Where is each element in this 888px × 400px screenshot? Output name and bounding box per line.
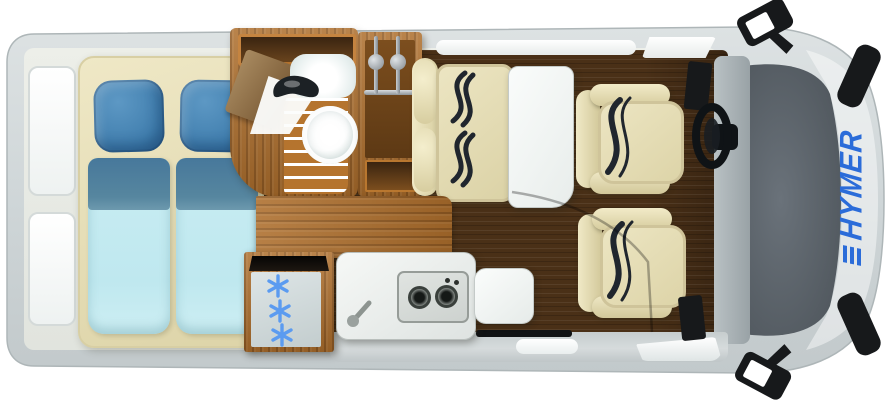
hob-knob bbox=[454, 280, 459, 285]
seatbelt-icon bbox=[590, 92, 660, 188]
cab-door-window-top bbox=[642, 37, 716, 58]
clothes-hanger-icon bbox=[372, 36, 380, 94]
hob-knob bbox=[445, 278, 450, 283]
side-window-strip bbox=[436, 40, 636, 55]
duvet bbox=[88, 158, 170, 334]
door-sill bbox=[516, 339, 578, 354]
faucet-icon bbox=[268, 70, 332, 110]
passenger-swivel-seat bbox=[578, 208, 682, 318]
toilet bbox=[302, 106, 358, 164]
rear-door-window-bottom bbox=[28, 212, 76, 326]
snowflake-icon bbox=[269, 276, 287, 296]
dinette-table bbox=[508, 66, 574, 208]
kitchen-faucet-icon bbox=[345, 297, 375, 327]
clothes-hanger-icon bbox=[394, 36, 402, 94]
seatbelts-icon bbox=[439, 67, 505, 193]
b-pillar-top bbox=[684, 61, 713, 111]
hymer-logo-text: HYMER bbox=[834, 128, 870, 241]
door-track bbox=[476, 330, 572, 337]
hymer-logo-mark-icon bbox=[843, 245, 861, 266]
hymer-logo: HYMER bbox=[834, 102, 870, 292]
bench-armrest bbox=[412, 58, 438, 196]
travel-bench-seat bbox=[436, 64, 514, 202]
fridge-opening bbox=[249, 256, 329, 271]
snowflake-icon bbox=[271, 301, 289, 321]
fridge-lid-panel bbox=[251, 272, 321, 347]
pillow bbox=[93, 79, 165, 153]
seatbelt-icon bbox=[592, 216, 662, 312]
b-pillar-bottom bbox=[678, 295, 706, 341]
kitchen-unit-body bbox=[256, 196, 452, 258]
burner-icon bbox=[408, 286, 431, 309]
wardrobe-lower-shelf bbox=[365, 160, 419, 192]
kitchen-counter bbox=[336, 252, 476, 340]
driver-swivel-seat bbox=[576, 84, 680, 194]
refrigerator bbox=[244, 252, 334, 352]
burner-icon bbox=[435, 285, 458, 308]
floorplan-canvas: HYMER bbox=[0, 0, 888, 400]
rear-door-window-top bbox=[28, 66, 76, 196]
worktop-extension bbox=[474, 268, 534, 324]
two-burner-hob bbox=[397, 271, 469, 323]
snowflake-icon bbox=[273, 325, 291, 345]
dashboard bbox=[714, 56, 750, 344]
bathroom bbox=[230, 28, 358, 198]
